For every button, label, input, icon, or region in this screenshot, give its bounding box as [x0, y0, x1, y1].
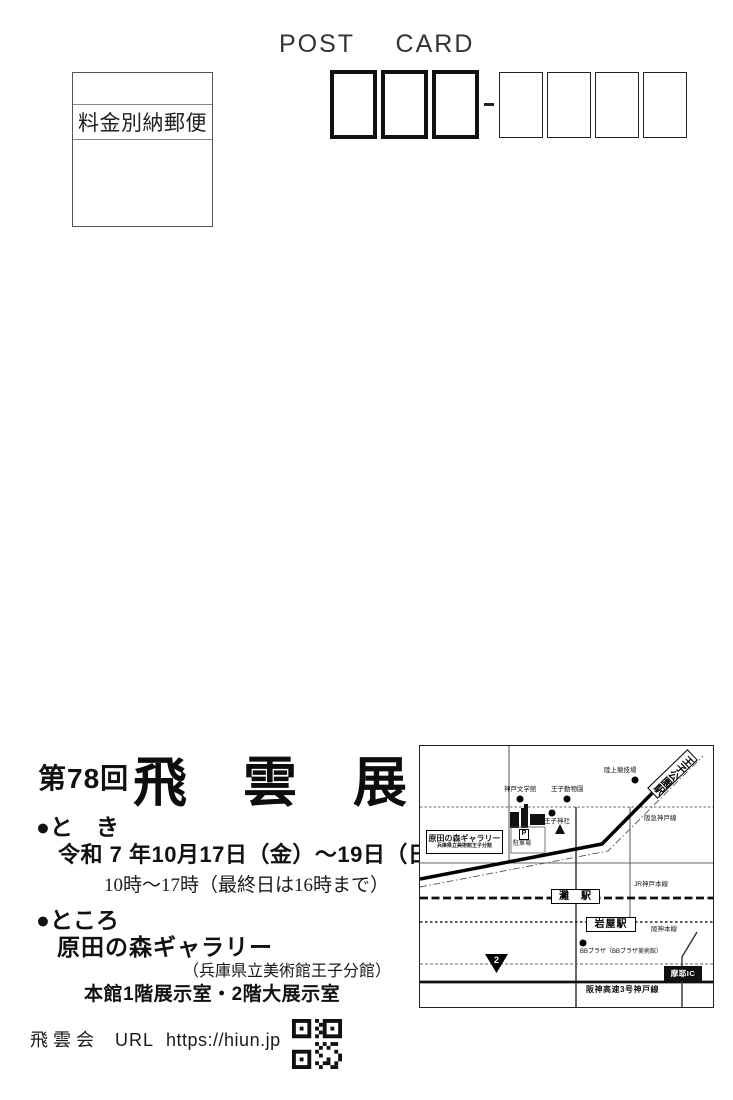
- parking-icon: P: [519, 829, 529, 840]
- bb-plaza-dot: [580, 940, 587, 947]
- gallery-callout-subtitle: 兵庫県立美術館王子分館: [437, 844, 492, 850]
- route-2-number: 2: [494, 955, 499, 965]
- website-url: https://hiun.jp: [166, 1030, 281, 1050]
- stadium-label: 陸上競技場: [604, 768, 637, 775]
- stamp-box-top-band: [73, 73, 212, 105]
- shrine-dot: [549, 810, 556, 817]
- literature-museum-dot: [517, 796, 524, 803]
- postal-digit-box: [381, 70, 428, 139]
- postal-digit-box: [499, 72, 543, 138]
- nada-station-box: 灘 駅: [551, 889, 600, 904]
- maya-ic-box: 摩耶IC: [664, 966, 702, 981]
- gallery-map-callout: 原田の森ギャラリー 兵庫県立美術館王子分館: [426, 830, 503, 854]
- postcard-heading: POST CARD: [279, 30, 474, 59]
- gallery-buildings: [510, 804, 545, 828]
- exhibition-round: 第78回: [38, 757, 129, 797]
- exhibition-hours: 10時～17時（最終日は16時まで）: [104, 870, 389, 897]
- shrine-label: 王子神社: [544, 819, 570, 826]
- iwaya-station-box: 岩屋駅: [586, 917, 636, 932]
- map-triangle-marker: [555, 824, 565, 834]
- literature-museum-label: 神戸文学館: [504, 787, 537, 794]
- parking-label: 駐車場: [513, 841, 531, 847]
- postal-code-hyphen: [484, 103, 494, 106]
- hanshin-line-label: 阪神本線: [651, 927, 677, 934]
- expressway-label: 阪神高速3号神戸線: [586, 986, 659, 994]
- postal-digit-box: [330, 70, 377, 139]
- organization-name: 飛雲会: [30, 1030, 99, 1050]
- zoo-dot: [564, 796, 571, 803]
- postal-digit-box: [432, 70, 479, 139]
- zoo-label: 王子動物園: [551, 787, 584, 794]
- footer-url-line: 飛雲会URLhttps://hiun.jp: [30, 1026, 281, 1052]
- postal-code-boxes: [330, 70, 687, 139]
- jr-line-label: JR神戸本線: [634, 882, 668, 889]
- postal-digit-box: [643, 72, 687, 138]
- stadium-dot: [632, 777, 639, 784]
- access-map: 2 王子公園駅 陸上競技場 神戸文学館 王子動物園 王子神社 阪急神戸線 JR神…: [419, 745, 714, 1008]
- postal-digit-box: [547, 72, 591, 138]
- postcard-page: POST CARD 料金別納郵便 第78回 飛雲展 ●と き 令和 7 年10月…: [0, 0, 733, 1100]
- exhibition-title: 飛雲展: [133, 738, 463, 817]
- postage-paid-stamp-box: 料金別納郵便: [72, 72, 213, 227]
- postage-paid-label: 料金別納郵便: [73, 105, 212, 140]
- exhibit-rooms: 本館1階展示室・2階大展示室: [84, 979, 340, 1006]
- exhibition-dates: 令和 7 年10月17日（金）～19日（日）: [58, 837, 453, 869]
- bb-plaza-label: BBプラザ（BBプラザ美術館）: [580, 949, 662, 955]
- stamp-box-bottom-band: [73, 140, 212, 226]
- postal-digit-box: [595, 72, 639, 138]
- hankyu-line-label: 阪急神戸線: [644, 816, 677, 823]
- url-label: URL: [115, 1030, 154, 1050]
- venue-note: （兵庫県立美術館王子分館）: [183, 957, 391, 981]
- qr-code: [292, 1019, 342, 1069]
